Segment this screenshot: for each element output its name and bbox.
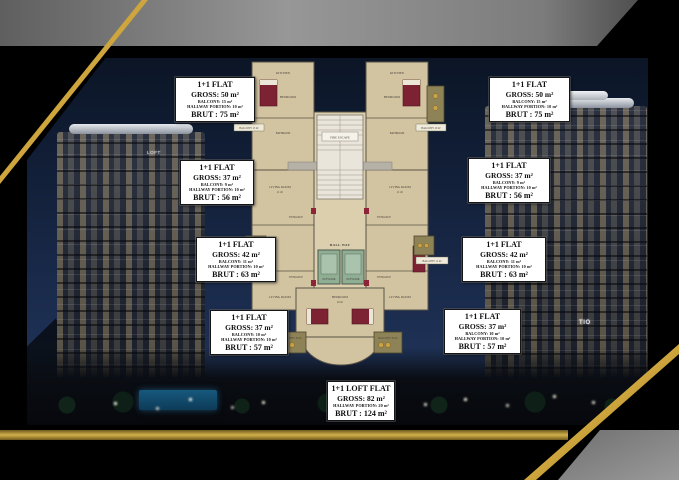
flat-brut: BRUT : 57 m²: [446, 342, 519, 352]
room-area-label: 21 m²: [277, 191, 283, 194]
flat-title: 1+1 FLAT: [446, 312, 519, 322]
flat-info-box: 1+1 FLAT GROSS: 50 m² BALCONY: 15 m² HAL…: [175, 77, 255, 122]
flat-title: 1+1 FLAT: [177, 80, 253, 90]
flat-info-box: 1+1 FLAT GROSS: 50 m² BALCONY: 15 m² HAL…: [489, 77, 570, 122]
room-label: KITCHEN: [276, 71, 291, 75]
flat-info-box: 1+1 FLAT GROSS: 37 m² BALCONY: 9 m² HALL…: [468, 158, 550, 203]
flat-title: 1+1 LOFT FLAT: [329, 384, 393, 394]
elevator-label: ELEVATOR: [322, 278, 335, 281]
room-label: KITCHEN: [390, 71, 405, 75]
room-label: LIVING ROOM: [269, 185, 291, 189]
room-area-label: 20 m²: [337, 301, 343, 304]
room-label: BATHROOM: [390, 132, 405, 135]
fire-escape-label: FIRE ESCAPE: [330, 136, 350, 140]
flat-title: 1+1 FLAT: [491, 80, 568, 90]
room-area-label: 21 m²: [397, 191, 403, 194]
round-balcony: [302, 337, 380, 365]
promo-canvas: LOFT TIO FIRE ESCAPE HALL WAY ELEVATOR E…: [0, 0, 679, 480]
flat-brut: BRUT : 75 m²: [491, 110, 568, 120]
room-label: BEDROOM: [280, 95, 296, 99]
room-label: ENTRANCE: [289, 276, 303, 279]
balcony-label: BALCONY 15 m²: [421, 127, 440, 130]
flat-brut: BRUT : 63 m²: [464, 270, 544, 280]
flat-title: 1+1 FLAT: [464, 240, 544, 250]
flat-gross: GROSS: 37 m²: [212, 323, 286, 332]
flat-title: 1+1 FLAT: [212, 313, 286, 323]
flat-gross: GROSS: 37 m²: [446, 322, 519, 331]
flat-hallway: HALLWAY PORTION: 10 m²: [182, 187, 252, 192]
room-label: LIVING ROOM: [269, 295, 291, 299]
bottom-right-gray-corner: [558, 430, 679, 480]
elevator-label: ELEVATOR: [346, 278, 359, 281]
room-label: BEDROOM: [332, 295, 348, 299]
flat-info-box: 1+1 FLAT GROSS: 37 m² BALCONY: 10 m² HAL…: [210, 310, 288, 355]
balcony-label: BALCONY 11 m²: [422, 260, 441, 263]
hallway-label: HALL WAY: [330, 243, 351, 247]
flat-gross: GROSS: 42 m²: [464, 250, 544, 259]
flat-info-box: 1+1 FLAT GROSS: 37 m² BALCONY: 9 m² HALL…: [180, 160, 254, 205]
flat-gross: GROSS: 82 m²: [329, 394, 393, 403]
flat-hallway: HALLWAY PORTION: 10 m²: [470, 185, 548, 190]
room-label: ENTRANCE: [377, 276, 391, 279]
garden-lights: [27, 58, 28, 59]
flat-hallway: HALLWAY PORTION: 10 m²: [212, 337, 286, 342]
flat-hallway: HALLWAY PORTION: 10 m²: [464, 264, 544, 269]
right-tower-sign: TIO: [579, 320, 591, 326]
bottom-gold-band: [0, 430, 568, 440]
flat-brut: BRUT : 56 m²: [182, 193, 252, 203]
flat-title: 1+1 FLAT: [470, 161, 548, 171]
flat-hallway: HALLWAY PORTION: 20 m²: [329, 403, 393, 408]
left-tower-sign: LOFT: [147, 150, 161, 155]
balcony-label: BALCONY 15 m²: [239, 127, 258, 130]
room-label: ENTRANCE: [289, 216, 303, 219]
top-gray-band: [0, 0, 638, 46]
flat-brut: BRUT : 57 m²: [212, 343, 286, 353]
room-label: ENTRANCE: [377, 216, 391, 219]
room-label: BEDROOM: [384, 95, 400, 99]
flat-info-box: 1+1 FLAT GROSS: 37 m² BALCONY: 10 m² HAL…: [444, 309, 521, 354]
flat-title: 1+1 FLAT: [198, 240, 274, 250]
flat-gross: GROSS: 50 m²: [177, 90, 253, 99]
flat-hallway: HALLWAY PORTION: 10 m²: [491, 104, 568, 109]
flat-hallway: HALLWAY PORTION: 10 m²: [198, 264, 274, 269]
flat-gross: GROSS: 37 m²: [182, 173, 252, 182]
flat-info-box: 1+1 FLAT GROSS: 42 m² BALCONY: 11 m² HAL…: [196, 237, 276, 282]
flat-gross: GROSS: 42 m²: [198, 250, 274, 259]
flat-brut: BRUT : 124 m²: [329, 409, 393, 419]
flat-gross: GROSS: 37 m²: [470, 171, 548, 180]
room-label: BATHROOM: [276, 132, 291, 135]
flat-hallway: HALLWAY PORTION: 10 m²: [177, 104, 253, 109]
flat-brut: BRUT : 56 m²: [470, 191, 548, 201]
flat-brut: BRUT : 75 m²: [177, 110, 253, 120]
flat-brut: BRUT : 63 m²: [198, 270, 274, 280]
loft-info-box: 1+1 LOFT FLAT GROSS: 82 m² HALLWAY PORTI…: [327, 381, 395, 421]
flat-hallway: HALLWAY PORTION: 10 m²: [446, 336, 519, 341]
flat-title: 1+1 FLAT: [182, 163, 252, 173]
balcony-label: BALCONY 10 m²: [378, 337, 397, 340]
flat-info-box: 1+1 FLAT GROSS: 42 m² BALCONY: 11 m² HAL…: [462, 237, 546, 282]
room-label: LIVING ROOM: [389, 295, 411, 299]
room-label: LIVING ROOM: [389, 185, 411, 189]
flat-gross: GROSS: 50 m²: [491, 90, 568, 99]
